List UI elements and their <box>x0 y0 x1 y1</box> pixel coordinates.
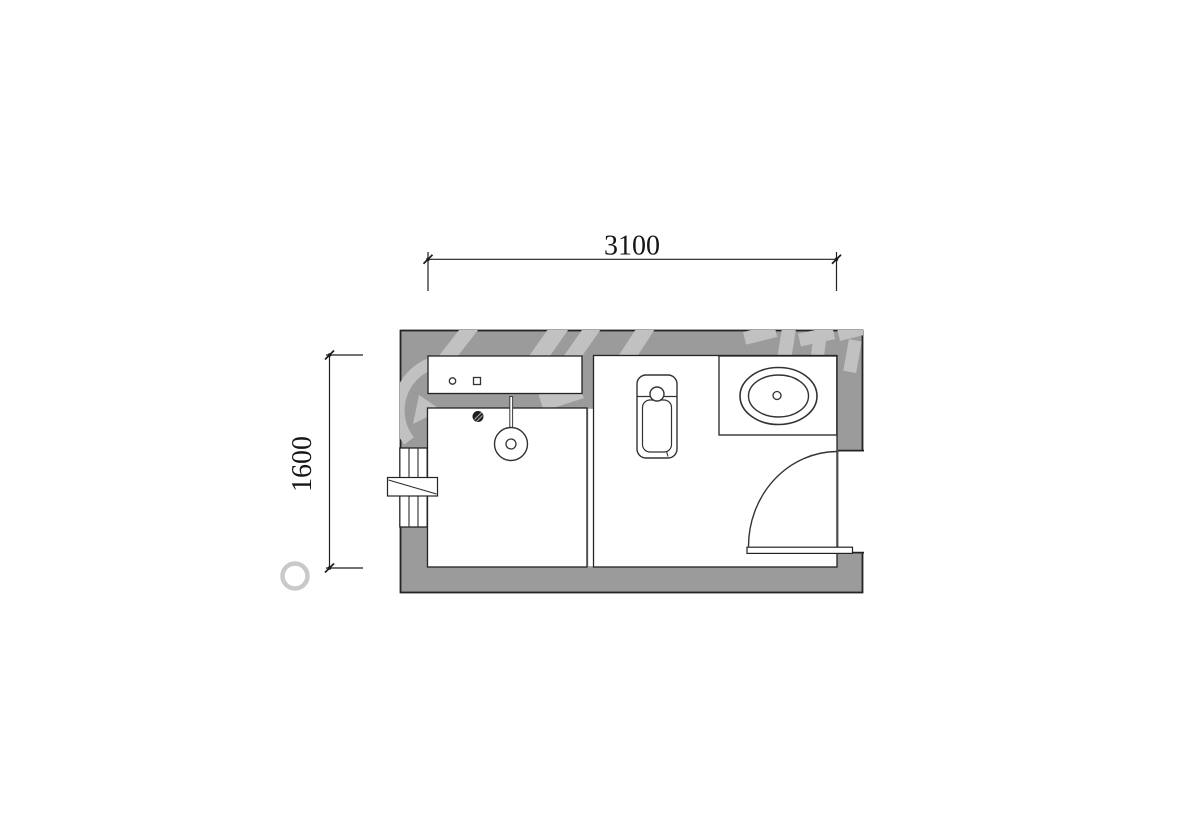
floor-plan-canvas: 3100 1600 <box>0 0 1198 831</box>
niche-outlet-round <box>449 378 455 384</box>
dimension-height <box>325 351 363 573</box>
niche-outlet-square <box>474 378 481 385</box>
shower-niche <box>428 356 582 394</box>
door-leaf <box>747 547 853 553</box>
floor-drain <box>473 411 484 422</box>
dimension-height-label: 1600 <box>287 436 318 492</box>
glass-partition <box>588 409 593 566</box>
dimension-width-label: 3100 <box>604 231 660 262</box>
bathroom-plan-drawing: 3100 1600 <box>0 0 1198 831</box>
sink-counter <box>719 356 837 435</box>
sink-drain <box>773 392 781 400</box>
window-sash <box>388 478 438 497</box>
door-opening <box>838 451 875 553</box>
watermark-logo-ring <box>283 564 308 589</box>
squat-toilet <box>637 375 677 458</box>
